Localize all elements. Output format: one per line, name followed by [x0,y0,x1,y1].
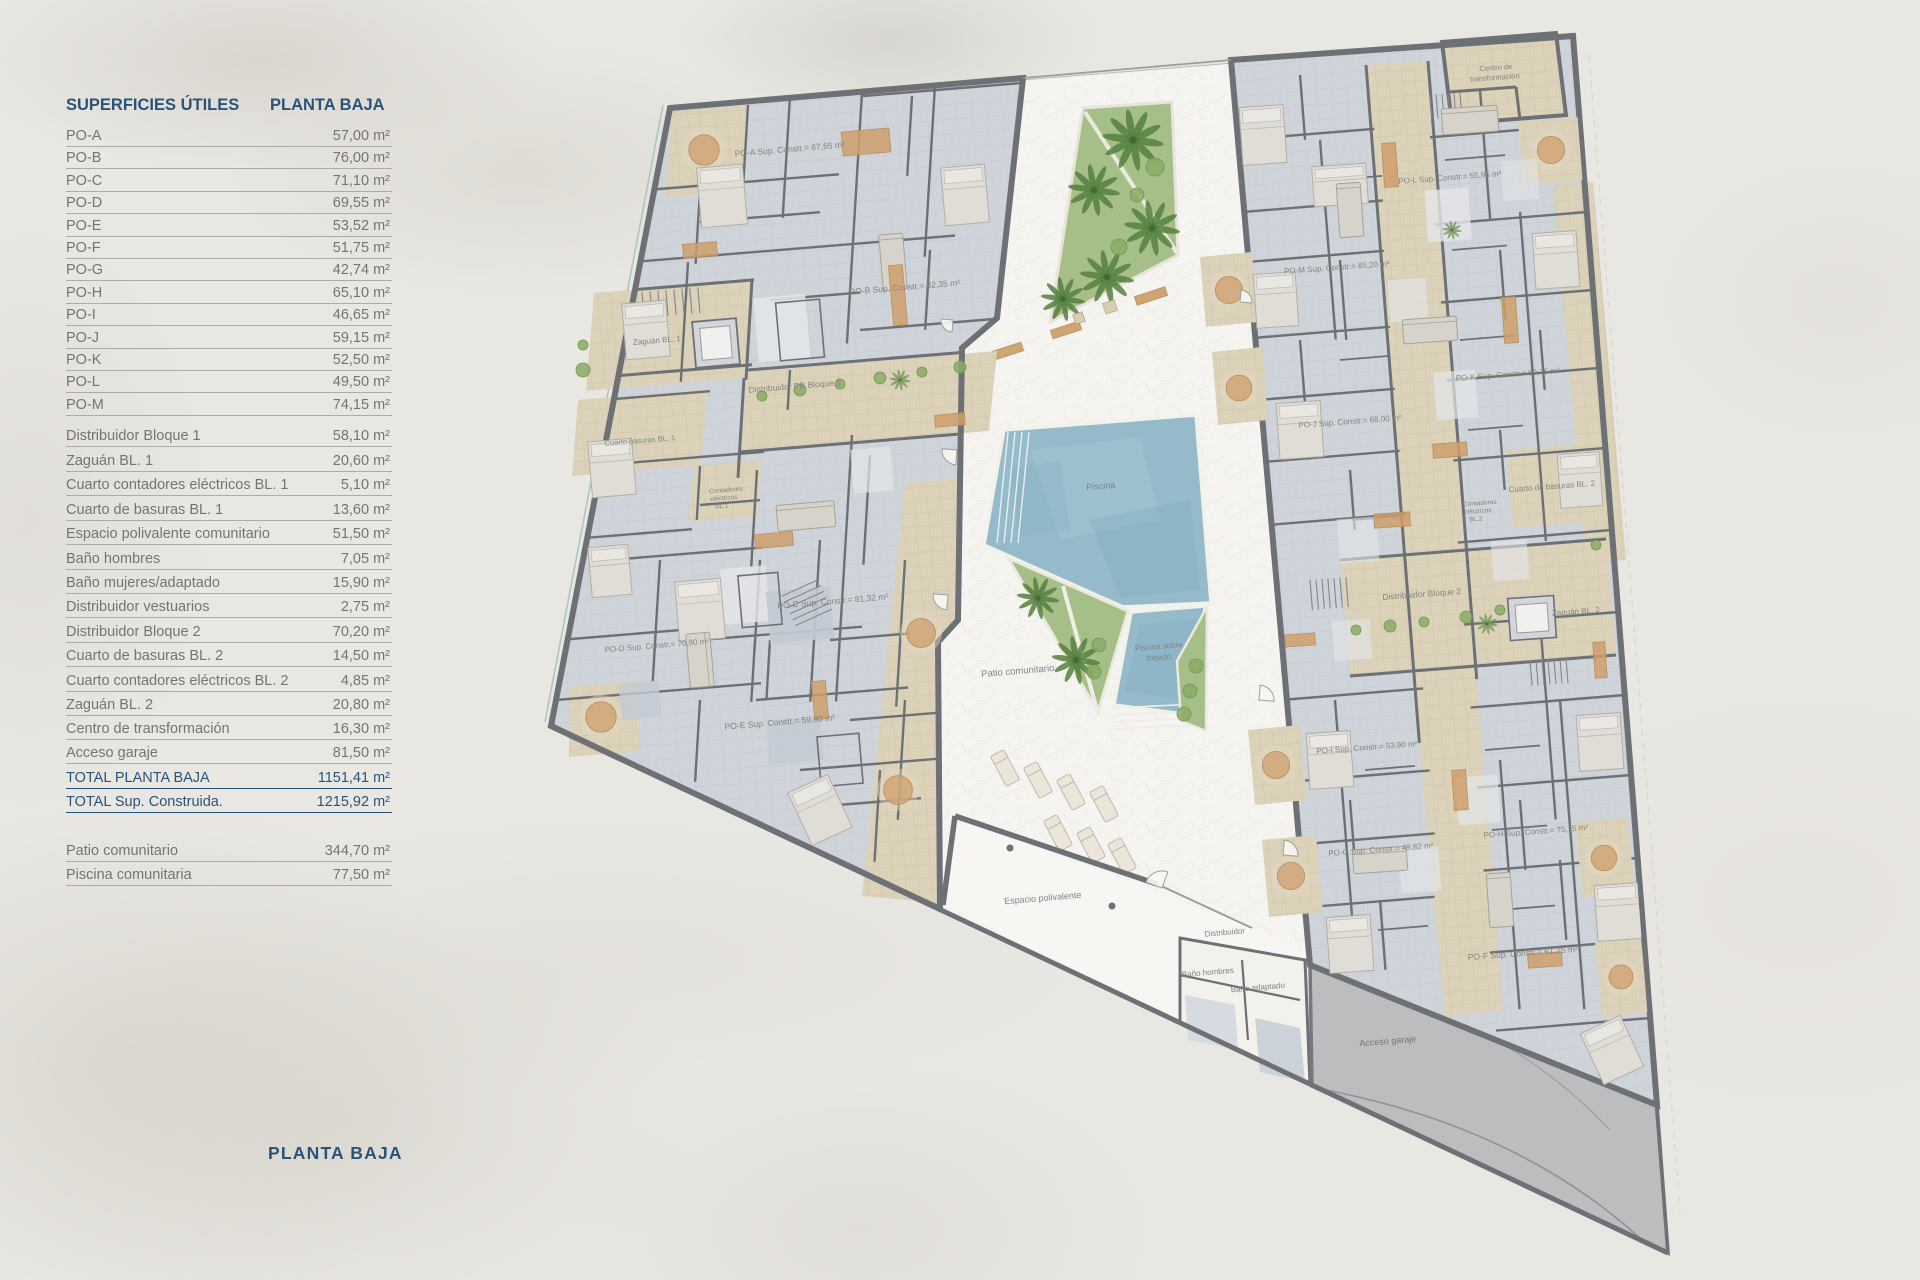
svg-text:BL.2: BL.2 [1469,515,1483,523]
svg-text:BL.1: BL.1 [715,502,729,510]
